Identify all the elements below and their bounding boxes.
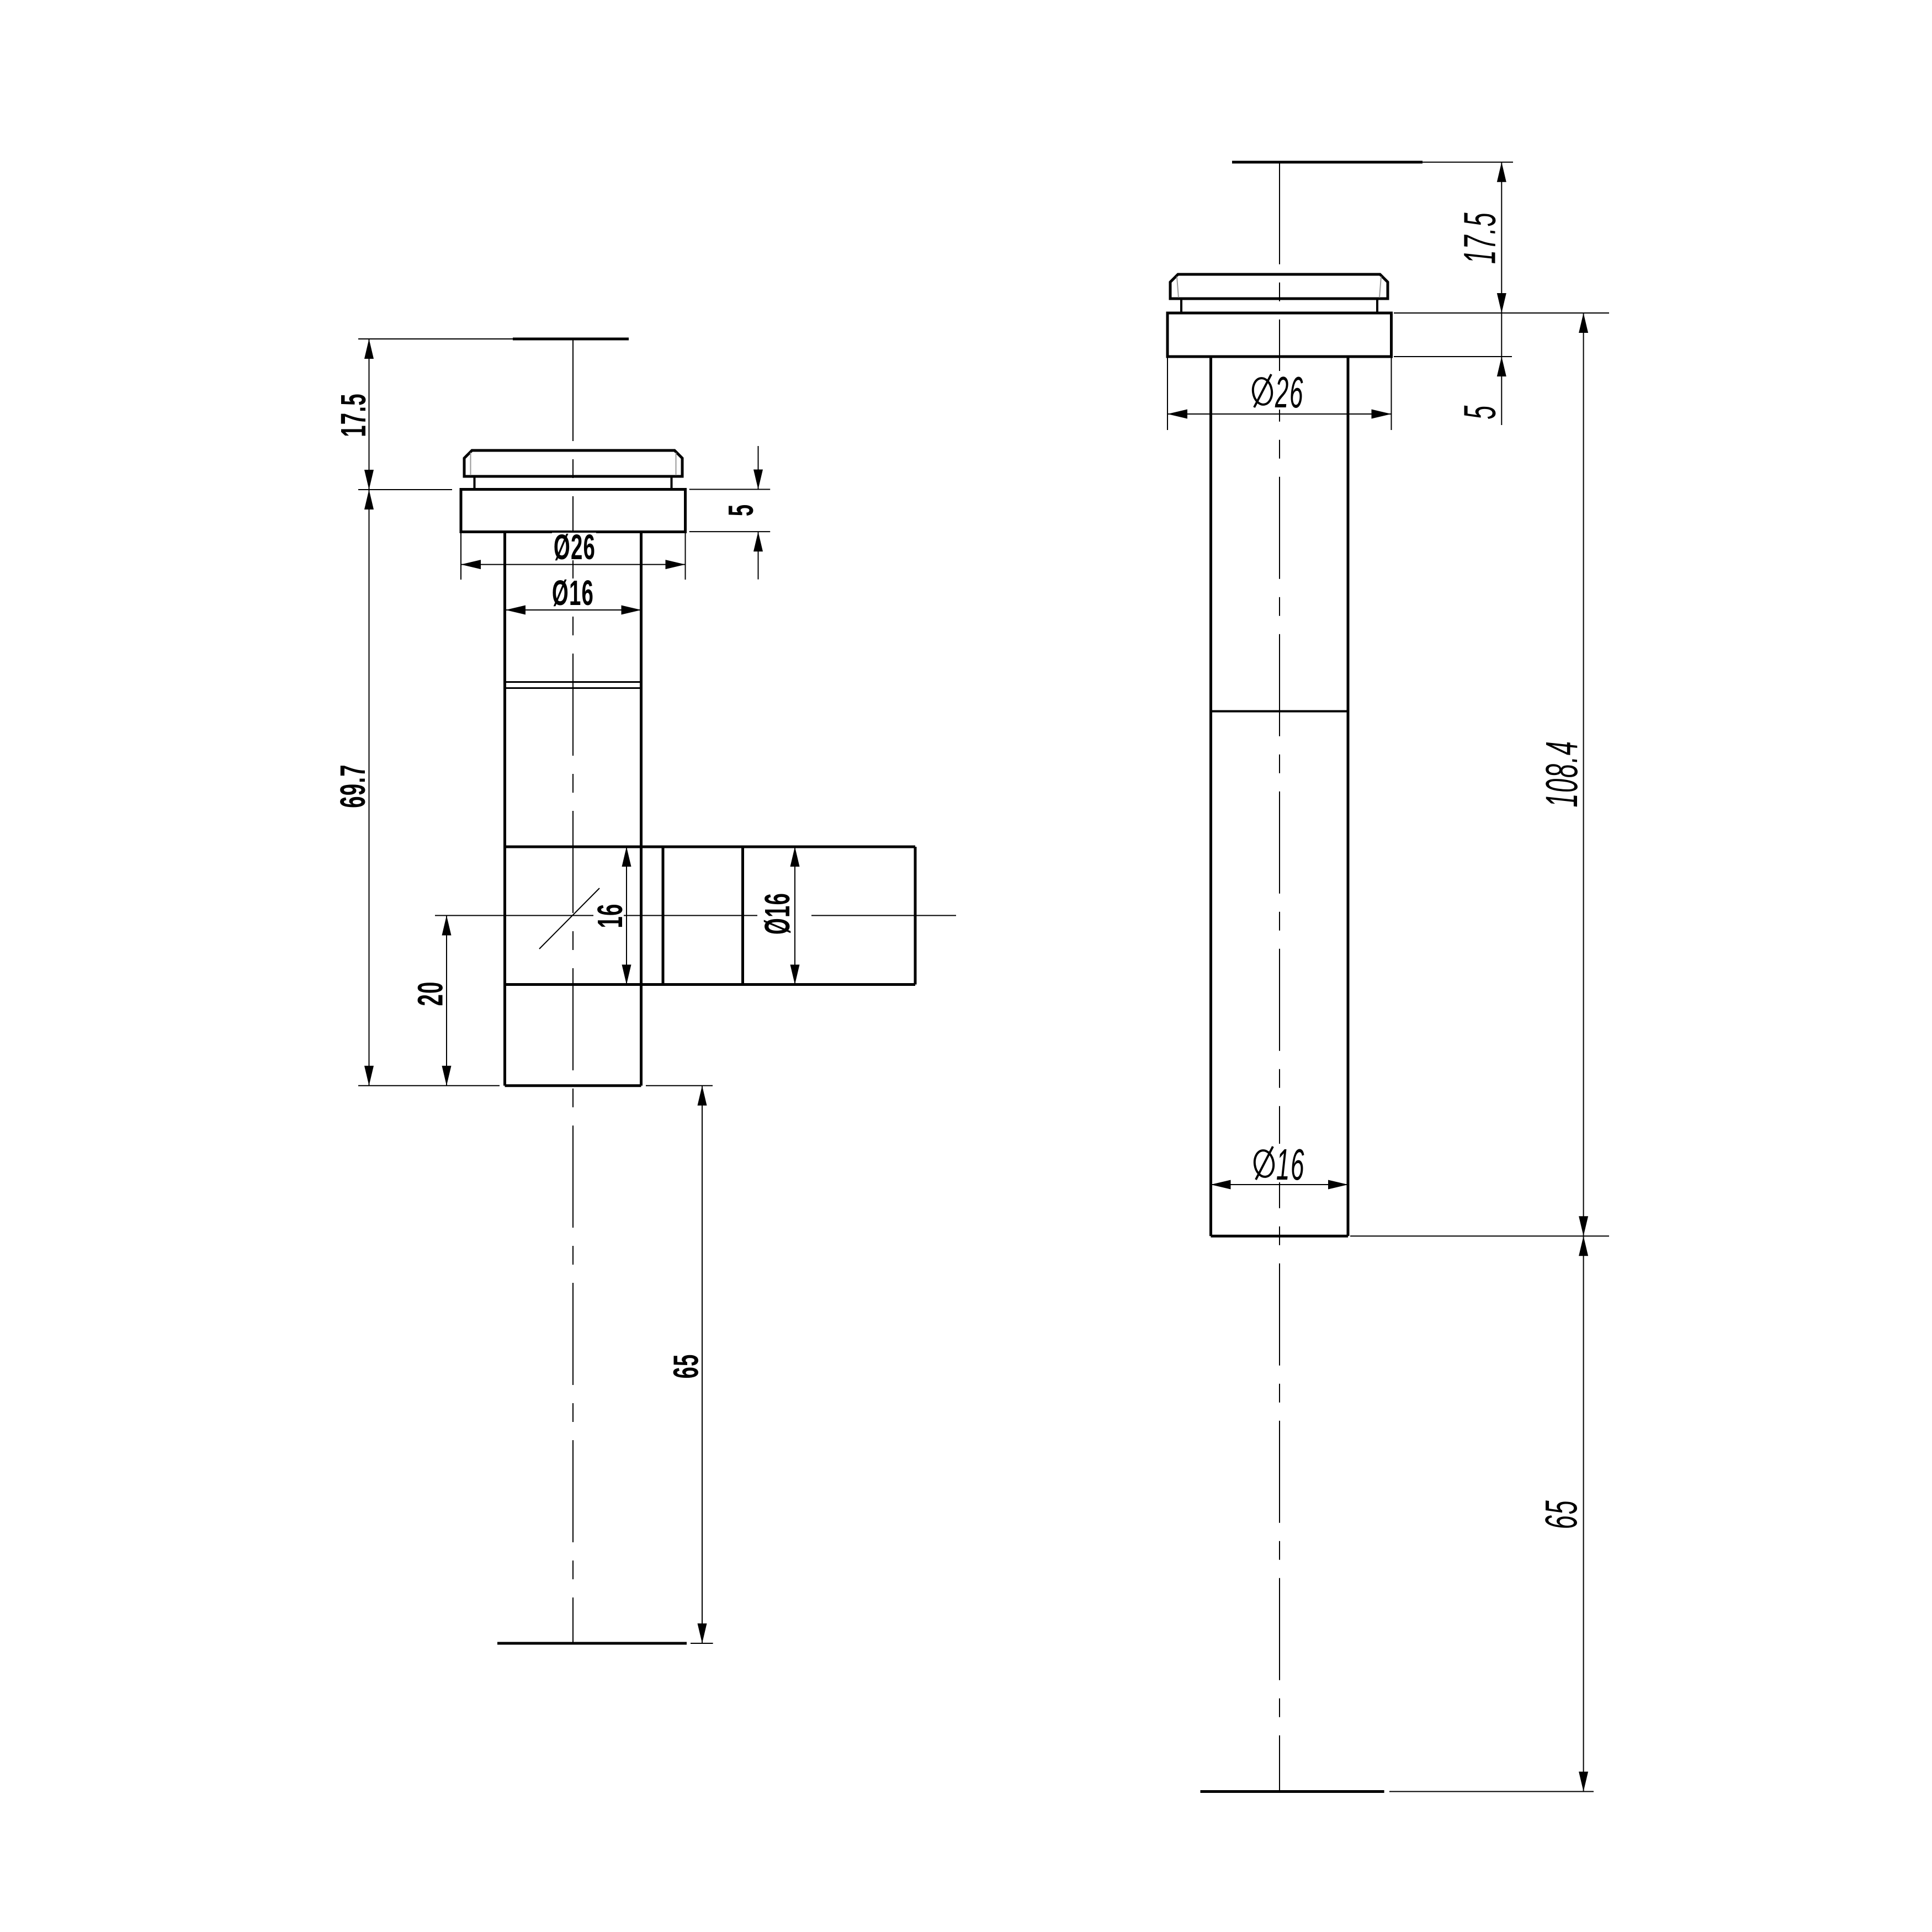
svg-text:Ø16: Ø16 (758, 893, 798, 935)
svg-text:69.7: 69.7 (333, 764, 373, 808)
svg-text:17.5: 17.5 (334, 393, 374, 437)
svg-text:17.5: 17.5 (1455, 212, 1505, 264)
svg-text:108.4: 108.4 (1537, 740, 1588, 807)
svg-text:5: 5 (1455, 405, 1505, 420)
svg-text:26: 26 (1275, 368, 1304, 417)
svg-text:65: 65 (1536, 1500, 1587, 1529)
svg-text:16: 16 (591, 903, 630, 928)
svg-text:65: 65 (667, 1354, 707, 1378)
svg-text:16: 16 (1276, 1140, 1305, 1189)
svg-text:5: 5 (721, 504, 761, 517)
svg-text:Ø16: Ø16 (552, 574, 594, 613)
svg-text:20: 20 (411, 981, 451, 1006)
svg-text:Ø26: Ø26 (554, 528, 596, 567)
